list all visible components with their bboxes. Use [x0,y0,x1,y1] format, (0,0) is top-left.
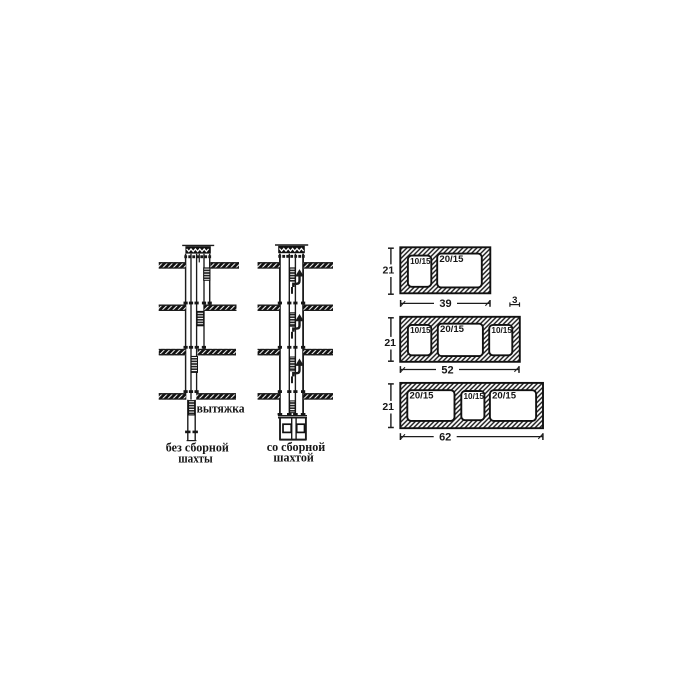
svg-text:39: 39 [439,298,451,310]
svg-text:10/15: 10/15 [491,326,512,335]
svg-text:21: 21 [382,401,394,413]
svg-text:21: 21 [383,264,395,276]
svg-text:шахтой: шахтой [273,450,314,465]
svg-text:21: 21 [384,337,396,349]
svg-text:52: 52 [441,364,453,376]
svg-text:10/15: 10/15 [410,326,431,335]
svg-text:шахты: шахты [178,451,213,466]
svg-text:вытяжка: вытяжка [197,400,245,415]
svg-text:10/15: 10/15 [410,257,431,266]
svg-text:20/15: 20/15 [440,324,465,335]
svg-text:20/15: 20/15 [492,390,517,401]
svg-text:62: 62 [439,431,451,443]
svg-text:20/15: 20/15 [439,254,464,265]
svg-text:10/15: 10/15 [464,392,485,401]
svg-text:20/15: 20/15 [410,390,435,401]
